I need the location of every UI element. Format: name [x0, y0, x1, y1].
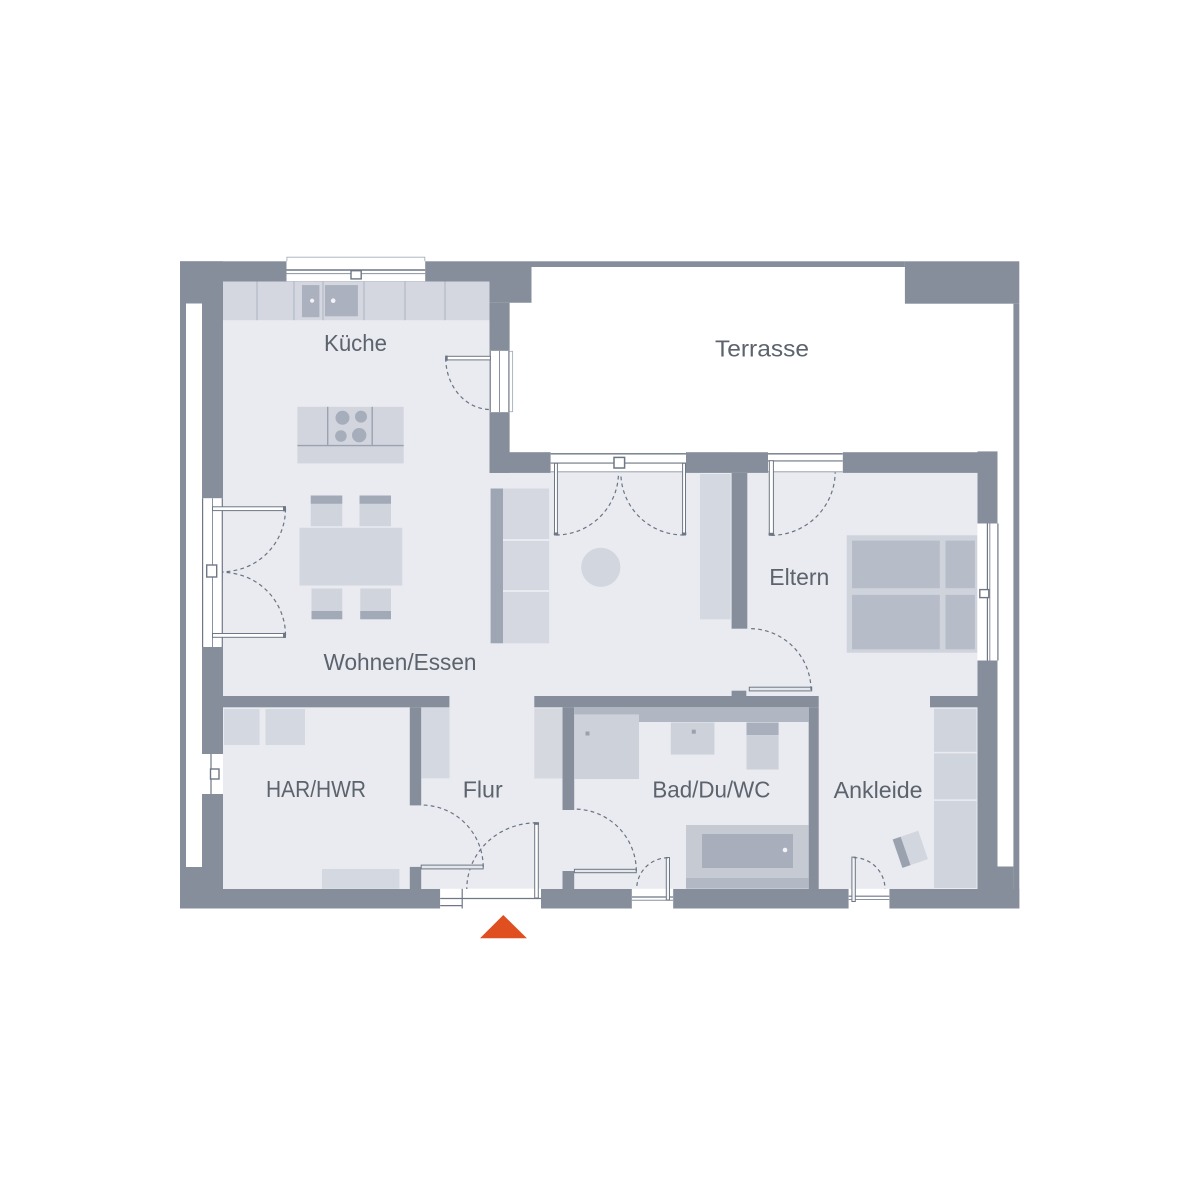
- svg-text:Küche: Küche: [324, 330, 387, 356]
- svg-text:HAR/HWR: HAR/HWR: [266, 776, 366, 802]
- svg-text:Flur: Flur: [463, 777, 503, 803]
- svg-text:Terrasse: Terrasse: [715, 336, 809, 362]
- svg-text:Ankleide: Ankleide: [834, 777, 923, 803]
- svg-text:Wohnen/Essen: Wohnen/Essen: [324, 649, 477, 675]
- svg-text:Eltern: Eltern: [769, 564, 829, 590]
- svg-text:Bad/Du/WC: Bad/Du/WC: [652, 777, 770, 803]
